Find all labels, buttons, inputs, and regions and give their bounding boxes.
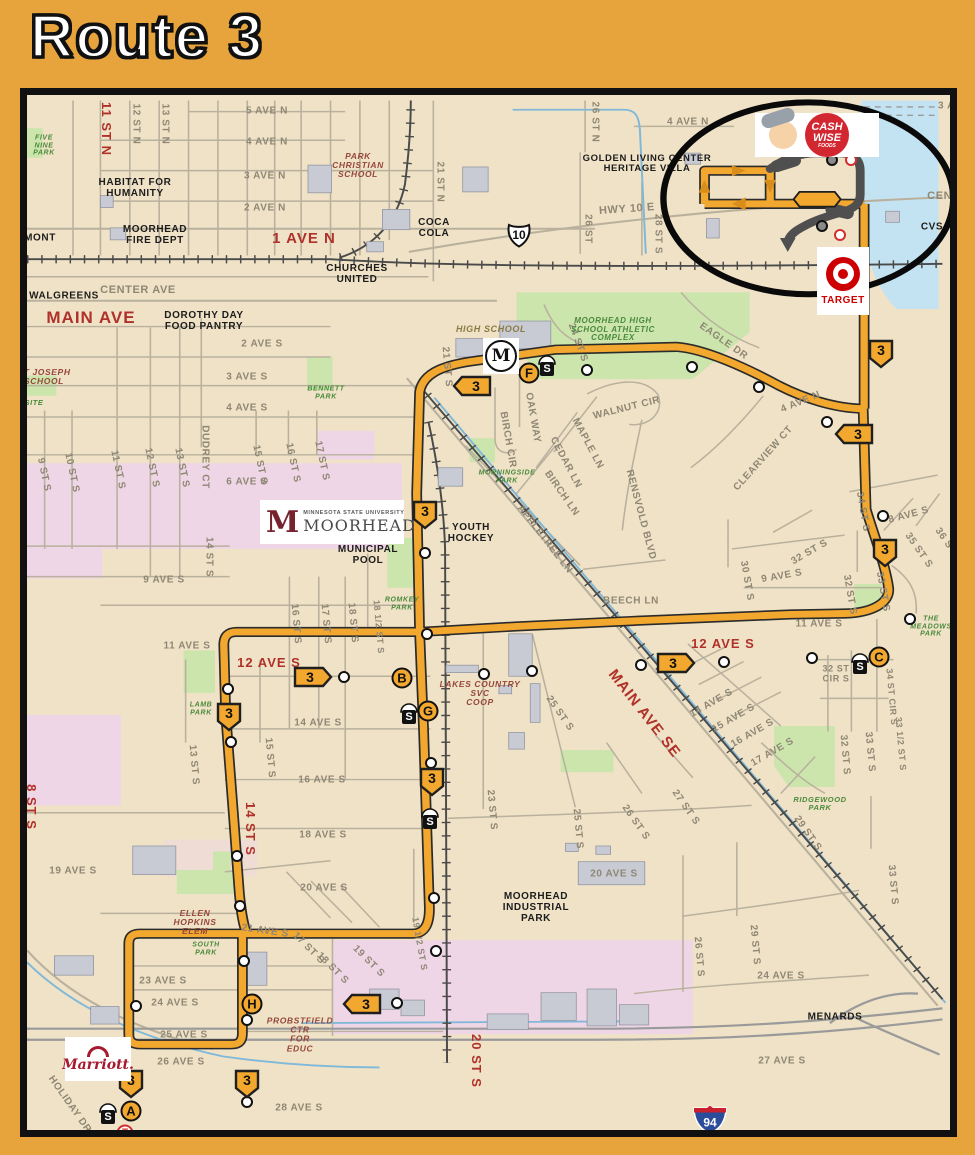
route-map-page: { "title": "Route 3", "colors": { "page_…: [0, 0, 975, 1155]
cashwise-chef-icon: [769, 121, 797, 149]
page-title: Route 3: [30, 2, 264, 71]
target-bullseye-icon: [826, 257, 860, 291]
marriott-arc-icon: [87, 1046, 109, 1057]
map-frame: 1 AVE NMAIN AVE11 ST N12 AVE S12 AVE SMA…: [20, 88, 957, 1137]
target-logo: TARGET: [817, 247, 869, 315]
marriott-logo: Marriott.: [65, 1037, 131, 1081]
map-logos-layer: CASH WISE FOODS TARGET Marriott. M MINNE…: [27, 95, 950, 1130]
msum-logo: M MINNESOTA STATE UNIVERSITY MOORHEAD: [260, 500, 404, 544]
cashwise-logo: CASH WISE FOODS: [755, 113, 879, 157]
